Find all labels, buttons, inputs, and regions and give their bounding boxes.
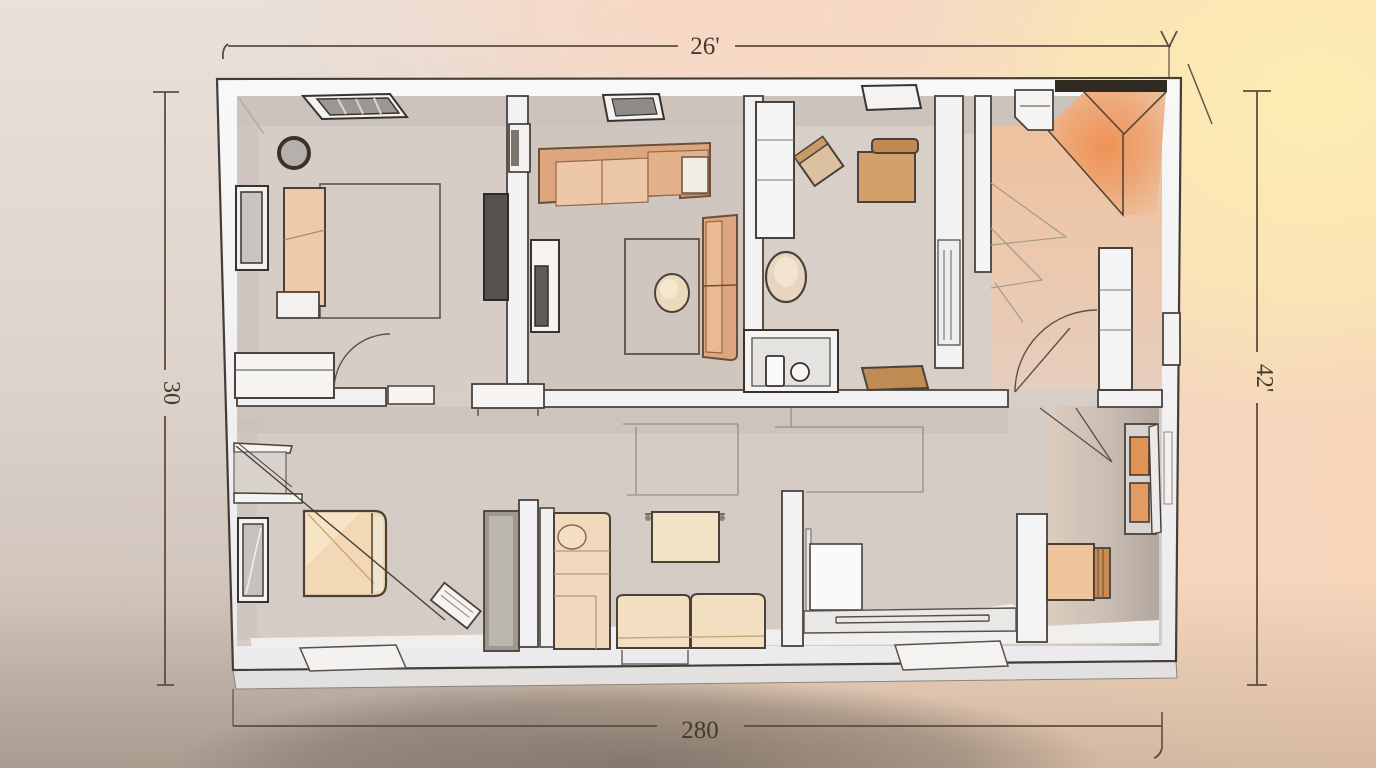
svg-text:26': 26' <box>690 33 720 60</box>
svg-text:30: 30 <box>158 381 184 405</box>
svg-text:280: 280 <box>681 717 719 744</box>
svg-text:42': 42' <box>1251 364 1277 392</box>
